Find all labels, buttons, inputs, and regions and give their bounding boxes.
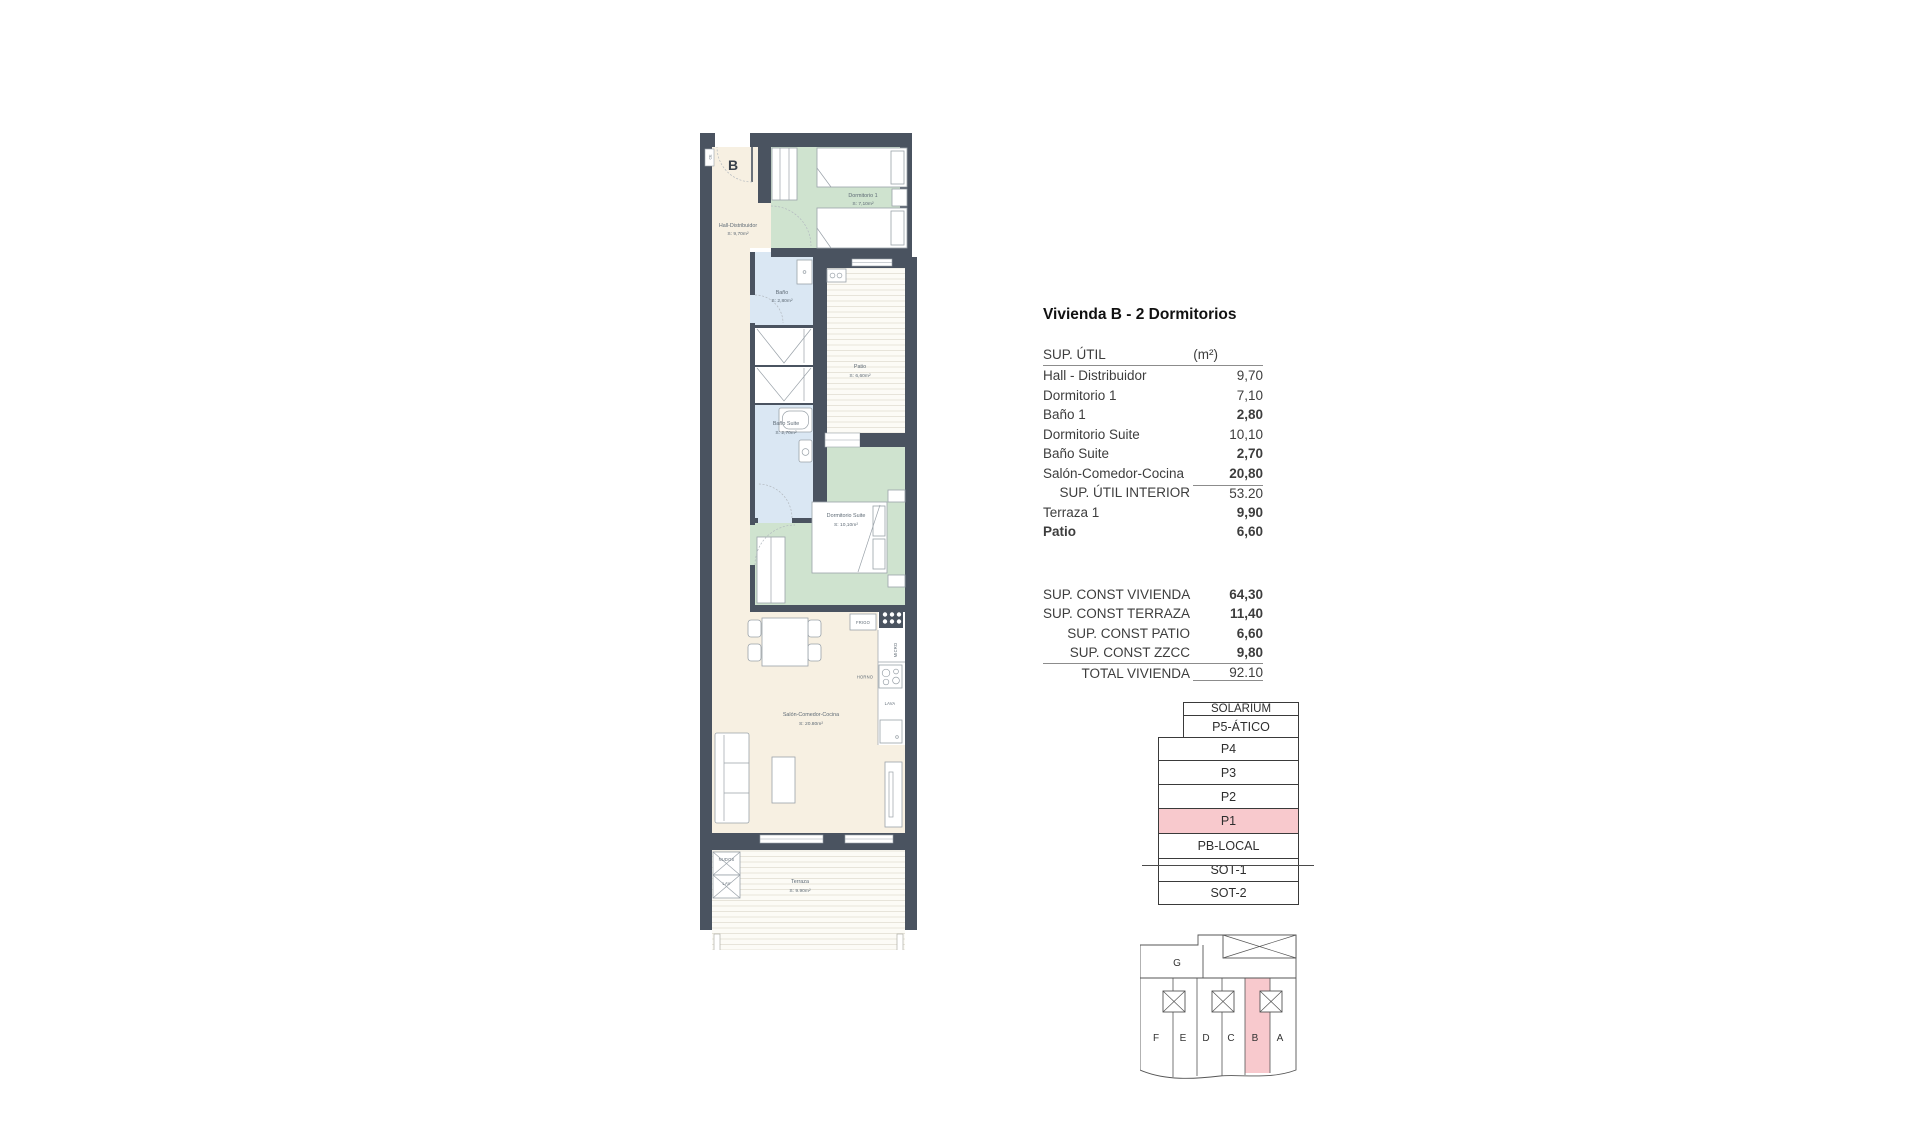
- hall-area: S: 9,70m²: [727, 231, 749, 237]
- row-value: 92.10: [1193, 665, 1263, 681]
- sink-icon: [797, 260, 812, 284]
- washer-icon: [880, 720, 902, 743]
- row-value: 6,60: [1193, 524, 1263, 539]
- tv-unit-icon: [885, 762, 902, 827]
- dining-table-icon: [762, 618, 808, 666]
- wardrobe-icon: [772, 148, 797, 200]
- bano-area: S: 2,80m²: [771, 298, 793, 304]
- sup-util-title: SUP. ÚTIL: [1043, 347, 1106, 362]
- salon-area: S: 20.80m²: [799, 721, 823, 727]
- table-row: Hall - Distribuidor 9,70: [1043, 366, 1263, 386]
- row-value: 7,10: [1193, 388, 1263, 403]
- row-value: 6,60: [1193, 626, 1263, 641]
- unit-header: (m²): [1193, 347, 1218, 363]
- door-opening-dorm1: [758, 203, 771, 248]
- row-value: 9,90: [1193, 505, 1263, 520]
- hob-icon: [879, 665, 902, 688]
- salon-label: Salón-Comedor-Cocina: [783, 712, 839, 718]
- table-row: Patio 6,60: [1043, 522, 1263, 542]
- floor-sot1: SOT-1: [1158, 858, 1299, 882]
- toilet-icon: [799, 440, 812, 462]
- row-label: Salón-Comedor-Cocina: [1043, 466, 1193, 481]
- row-label: SUP. CONST TERRAZA: [1043, 606, 1193, 621]
- row-label: Baño 1: [1043, 407, 1193, 422]
- door-opening-dorm-suite: [750, 525, 755, 565]
- dorm-suite-label: Dormitorio Suite: [827, 513, 866, 519]
- row-label: SUP. CONST ZZCC: [1043, 645, 1193, 660]
- chair-icon: [748, 644, 761, 661]
- coffee-table-icon: [772, 757, 795, 803]
- chair-icon: [748, 620, 761, 637]
- row-value: 9,80: [1193, 645, 1263, 660]
- floor-p4: P4: [1158, 737, 1299, 761]
- table-row: SUP. CONST PATIO 6,60: [1043, 624, 1263, 644]
- table-row-subtotal: SUP. ÚTIL INTERIOR 53.20: [1043, 483, 1263, 503]
- row-label: Patio: [1043, 524, 1193, 539]
- patio-details: [827, 269, 846, 282]
- dorm-suite-area: S: 10,10m²: [834, 522, 858, 528]
- nightstand-icon: [888, 575, 905, 587]
- unit-d-label: D: [1202, 1033, 1209, 1044]
- row-value: 11,40: [1193, 606, 1263, 621]
- table-row: Dormitorio 1 7,10: [1043, 386, 1263, 406]
- table-row: Terraza 1 9,90: [1043, 503, 1263, 523]
- unit-e-label: E: [1180, 1033, 1187, 1044]
- ground-line: [1142, 865, 1314, 866]
- table-row: Baño 1 2,80: [1043, 405, 1263, 425]
- micro-label: MICRO: [893, 643, 898, 658]
- unit-c-label: C: [1227, 1033, 1234, 1044]
- chair-icon: [808, 620, 821, 637]
- bano-suite-label: Baño Suite: [773, 421, 799, 427]
- row-label: Terraza 1: [1043, 505, 1193, 520]
- row-label: SUP. ÚTIL INTERIOR: [1043, 485, 1193, 500]
- row-label: Dormitorio 1: [1043, 388, 1193, 403]
- page-title: Vivienda B - 2 Dormitorios: [1043, 306, 1263, 326]
- nightstand-icon: [892, 189, 907, 206]
- table-row: SUP. CONST ZZCC 9,80: [1043, 643, 1263, 663]
- table-row: Dormitorio Suite 10,10: [1043, 425, 1263, 445]
- zone-g-label: G: [1173, 958, 1181, 969]
- sofa-icon: [715, 733, 749, 823]
- floor-sot2: SOT-2: [1158, 881, 1299, 905]
- unit-letter: B: [728, 157, 738, 173]
- bano-suite-area: S: 2,70m²: [775, 430, 797, 436]
- row-value: 2,80: [1193, 407, 1263, 422]
- floor-p2: P2: [1158, 784, 1299, 809]
- row-value: 9,70: [1193, 368, 1263, 383]
- dorm1-area: S: 7,10m²: [852, 201, 874, 207]
- terraza-apron: [712, 932, 905, 950]
- page-canvas: CE B: [0, 0, 1920, 1140]
- column: [714, 934, 720, 950]
- table-row: SUP. CONST TERRAZA 11,40: [1043, 604, 1263, 624]
- patio-label: Patio: [854, 364, 866, 370]
- floor-plan: CE B: [700, 120, 930, 950]
- terraza-area: S: 9.90m²: [789, 888, 811, 894]
- unit-a-label: A: [1277, 1033, 1284, 1044]
- lava-label: LAVA: [885, 701, 896, 706]
- summary-panel: Vivienda B - 2 Dormitorios SUP. ÚTIL (m²…: [1043, 306, 1263, 683]
- table-row: SUP. CONST VIVIENDA 64,30: [1043, 585, 1263, 605]
- corridor: [712, 248, 750, 607]
- unit-f-label: F: [1153, 1033, 1159, 1044]
- row-label: Dormitorio Suite: [1043, 427, 1193, 442]
- row-label: Baño Suite: [1043, 446, 1193, 461]
- table-row-total: TOTAL VIVIENDA 92.10: [1043, 663, 1263, 684]
- room-patio: [827, 268, 905, 433]
- row-label: SUP. CONST PATIO: [1043, 626, 1193, 641]
- hall-label: Hall-Distribuidor: [719, 223, 758, 229]
- row-value: 53.20: [1193, 485, 1263, 501]
- row-label: Hall - Distribuidor: [1043, 368, 1193, 383]
- chair-icon: [808, 644, 821, 661]
- floor-p1-highlighted: P1: [1158, 808, 1299, 834]
- frigo-label: FRIGO: [856, 620, 870, 625]
- floor-p3: P3: [1158, 760, 1299, 785]
- sink-drainer-icon: [879, 608, 903, 628]
- floor-stack: SOLARIUM P5-ÁTICO P4 P3 P2 P1 PB-LOCAL S…: [1158, 702, 1299, 905]
- floor-pb-local: PB-LOCAL: [1158, 833, 1299, 859]
- patio-area: S: 6,60m²: [849, 373, 871, 379]
- bathtub-icon: [779, 408, 812, 432]
- floor-p5-atico: P5-ÁTICO: [1183, 715, 1299, 738]
- building-diagram: G F E D C B A: [1140, 933, 1300, 1083]
- sup-util-header: SUP. ÚTIL (m²): [1043, 347, 1263, 366]
- column: [897, 934, 903, 950]
- door-opening-bano-suite: [758, 518, 792, 523]
- sup-const-table: SUP. CONST VIVIENDA 64,30 SUP. CONST TER…: [1043, 585, 1263, 684]
- terraza-label: Terraza: [791, 879, 809, 885]
- elevator-icons: [1163, 991, 1282, 1012]
- unit-b-label: B: [1252, 1033, 1259, 1044]
- row-label: SUP. CONST VIVIENDA: [1043, 587, 1193, 602]
- floor-solarium: SOLARIUM: [1183, 702, 1299, 716]
- row-value: 2,70: [1193, 446, 1263, 461]
- dorm1-label: Dormitorio 1: [848, 193, 877, 199]
- lav-label: LAV: [722, 881, 730, 886]
- row-value: 20,80: [1193, 466, 1263, 481]
- row-value: 64,30: [1193, 587, 1263, 602]
- row-label: TOTAL VIVIENDA: [1043, 666, 1193, 681]
- row-value: 10,10: [1193, 427, 1263, 442]
- door-opening-bano: [750, 295, 755, 323]
- bano-label: Baño: [776, 290, 789, 296]
- ce-label: CE: [709, 154, 713, 160]
- table-row: Baño Suite 2,70: [1043, 444, 1263, 464]
- table-row: Salón-Comedor-Cocina 20,80: [1043, 464, 1263, 484]
- nudos-label: NUDOS: [719, 857, 735, 862]
- nightstand-icon: [888, 490, 905, 502]
- horno-label: HORNO: [857, 675, 873, 680]
